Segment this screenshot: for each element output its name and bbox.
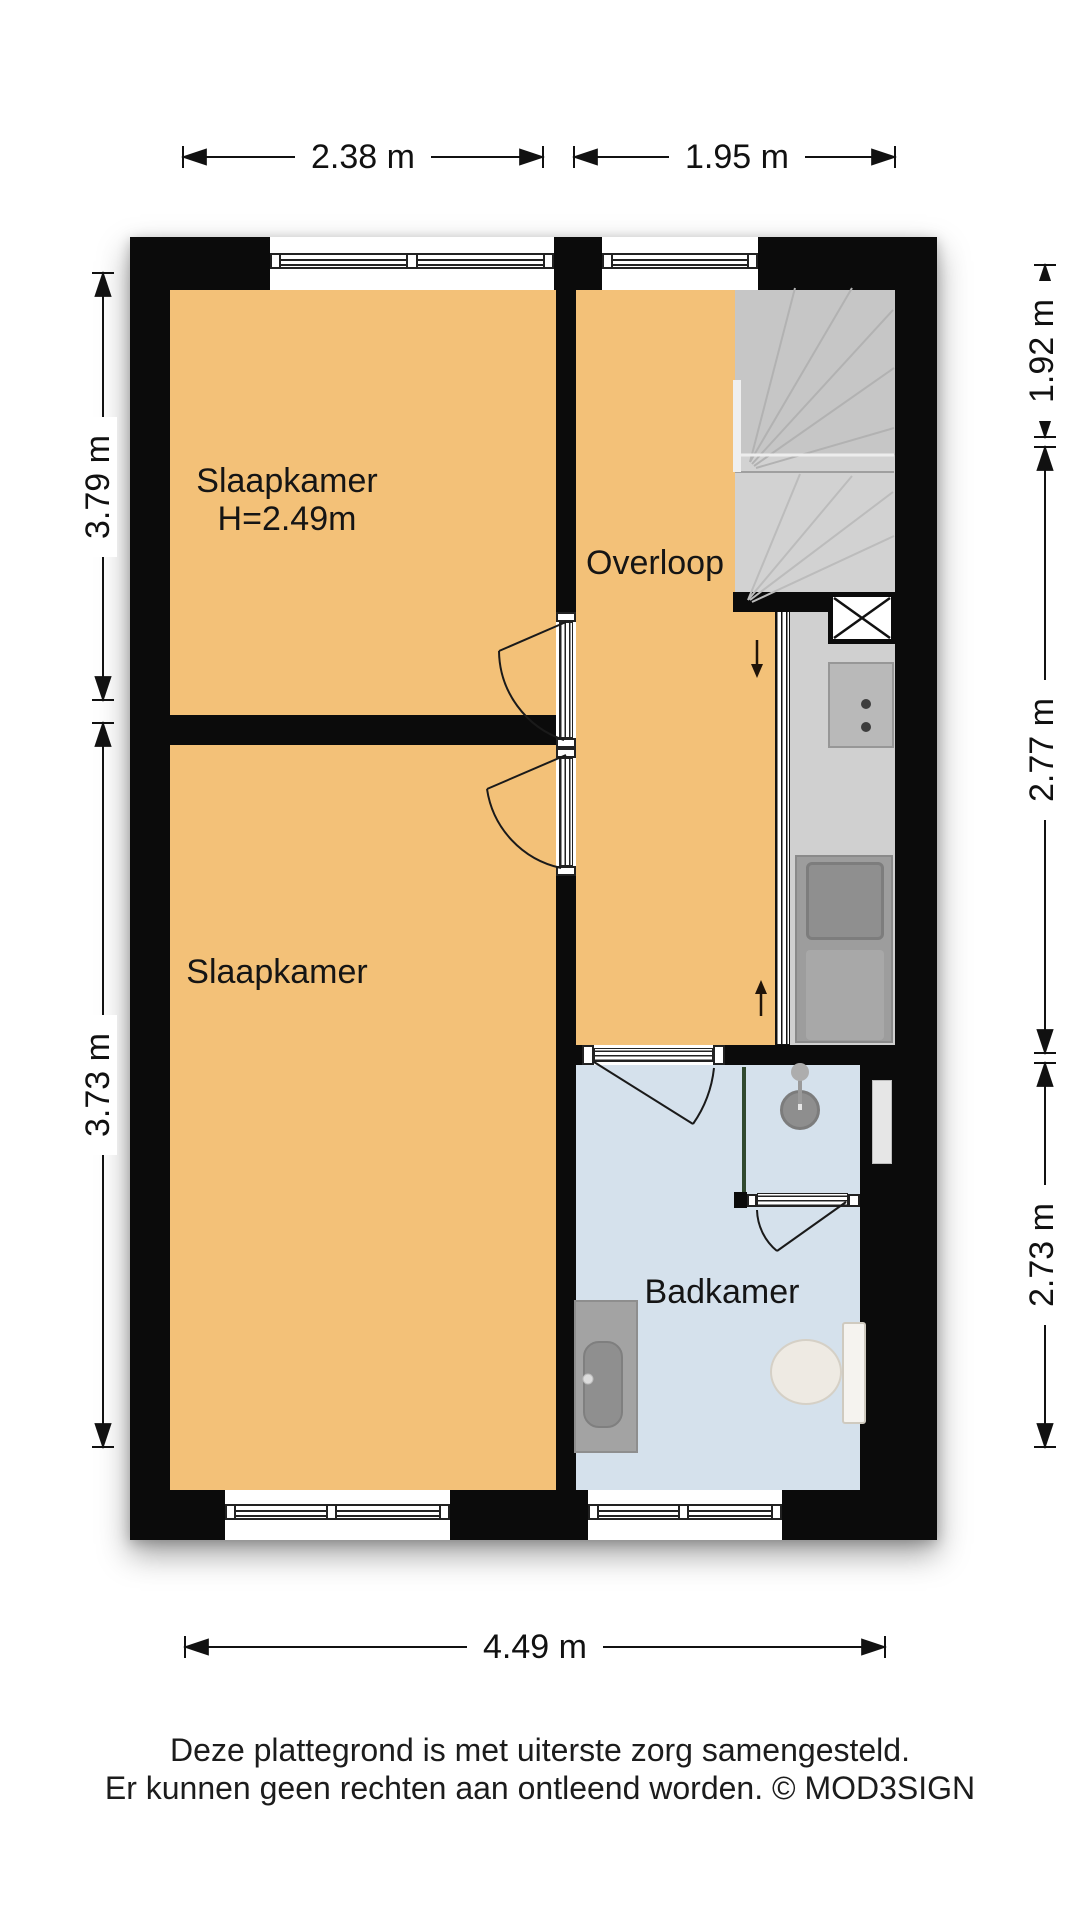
disclaimer-line-1: Deze plattegrond is met uiterste zorg sa… xyxy=(0,1732,1080,1768)
shower-door-leaf xyxy=(757,1193,848,1207)
door-jamb xyxy=(713,1045,725,1065)
door-jamb xyxy=(556,612,576,622)
door-jamb xyxy=(848,1194,860,1207)
shaft-x-symbol xyxy=(828,592,896,644)
dimension-left-2: 3.73 m xyxy=(77,1015,117,1155)
shower-head-tick xyxy=(798,1094,802,1110)
window-top-2-glazing xyxy=(612,253,748,269)
shower-door-hinge-block xyxy=(734,1192,747,1208)
door-jamb xyxy=(556,866,576,876)
washing-machine-door xyxy=(806,862,884,940)
stair-railing xyxy=(775,610,790,1045)
boiler-knob xyxy=(861,722,871,732)
door-jamb xyxy=(747,1194,757,1207)
toilet-tank xyxy=(842,1322,866,1424)
dimension-top-2: 1.95 m xyxy=(669,136,805,178)
dimension-right-1: 1.92 m xyxy=(1021,281,1061,421)
bedroom-top-height: H=2.49m xyxy=(107,500,467,538)
floor-plan-page: Slaapkamer H=2.49m Slaapkamer Overloop B… xyxy=(0,0,1080,1920)
room-bedroom-bottom xyxy=(170,745,556,1490)
wall-between-bedrooms xyxy=(170,715,556,745)
room-label-landing: Overloop xyxy=(555,544,755,582)
door-jamb xyxy=(556,738,576,748)
toilet-bowl xyxy=(770,1339,842,1405)
boiler-knob xyxy=(861,699,871,709)
wall-under-stairs xyxy=(733,592,830,612)
dimension-left-1: 3.79 m xyxy=(77,417,117,557)
window-bottom-1-glazing xyxy=(235,1504,440,1520)
wall-left xyxy=(130,237,170,1540)
window-frame-cap xyxy=(588,1504,599,1520)
window-mullion xyxy=(678,1504,689,1520)
wall-right-upper xyxy=(895,237,937,1045)
window-frame-cap xyxy=(771,1504,782,1520)
door-jamb xyxy=(556,748,576,758)
window-frame-cap xyxy=(543,253,554,269)
window-mullion xyxy=(326,1504,337,1520)
door-bathroom-leaf xyxy=(594,1048,713,1062)
room-label-bedroom-bottom: Slaapkamer xyxy=(97,953,457,991)
door-bedroom-top-leaf xyxy=(559,622,573,738)
window-frame-cap xyxy=(270,253,281,269)
window-mullion xyxy=(406,253,418,269)
dimension-top-1: 2.38 m xyxy=(295,136,431,178)
door-bedroom-bottom-leaf xyxy=(559,758,573,866)
window-frame-cap xyxy=(747,253,758,269)
wall-divider xyxy=(556,290,576,1490)
window-frame-cap xyxy=(602,253,613,269)
stairs-upper-flight xyxy=(735,285,895,455)
stairs-lower-flight xyxy=(735,455,895,612)
bathtub-basin xyxy=(583,1341,623,1428)
bedroom-top-name: Slaapkamer xyxy=(107,462,467,500)
dimension-right-2: 2.77 m xyxy=(1021,680,1061,820)
washing-machine-panel xyxy=(806,950,884,1040)
disclaimer-line-2: Er kunnen geen rechten aan ontleend word… xyxy=(0,1770,1080,1806)
door-jamb xyxy=(582,1045,594,1065)
room-label-bathroom: Badkamer xyxy=(592,1273,852,1311)
dimension-bottom: 4.49 m xyxy=(467,1626,603,1668)
radiator xyxy=(872,1080,892,1164)
room-label-bedroom-top: Slaapkamer H=2.49m xyxy=(107,462,467,538)
window-frame-cap xyxy=(225,1504,236,1520)
dimension-right-3: 2.73 m xyxy=(1021,1185,1061,1325)
window-frame-cap xyxy=(439,1504,450,1520)
